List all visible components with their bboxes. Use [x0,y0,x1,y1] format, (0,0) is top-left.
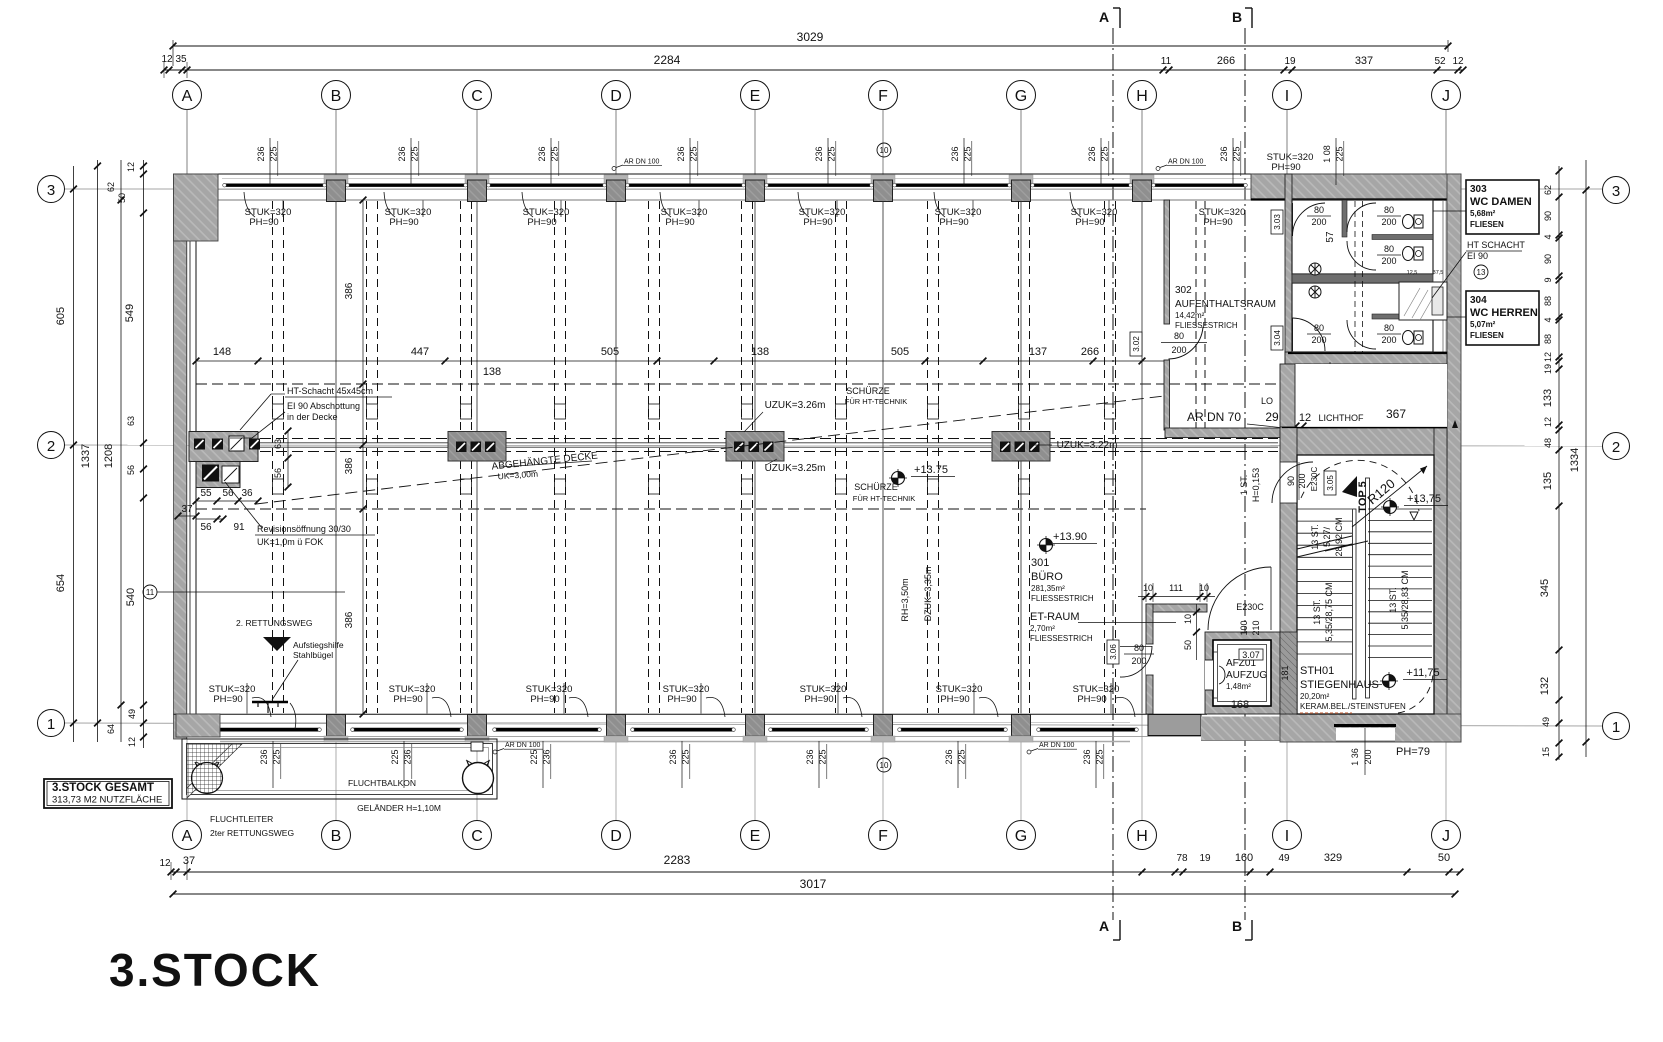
svg-text:G: G [1015,88,1027,105]
svg-text:A: A [182,828,193,845]
svg-text:225: 225 [390,749,400,764]
svg-text:50: 50 [117,193,127,203]
svg-text:3.03: 3.03 [1273,214,1282,230]
svg-text:3017: 3017 [800,877,827,891]
svg-text:G: G [1015,828,1027,845]
svg-text:C: C [471,88,483,105]
svg-text:88: 88 [1543,334,1553,344]
svg-text:PH=90: PH=90 [804,694,833,705]
svg-text:EI 90 Abschottung: EI 90 Abschottung [287,401,360,411]
svg-text:3.02: 3.02 [1132,336,1141,352]
svg-text:37: 37 [181,504,193,515]
svg-text:FLIESSESTRICH: FLIESSESTRICH [1031,594,1094,603]
svg-text:80: 80 [1174,331,1184,341]
svg-text:10: 10 [1199,583,1209,593]
svg-text:14,42m²: 14,42m² [1175,311,1205,320]
svg-text:11: 11 [146,588,155,597]
svg-text:12,5: 12,5 [1407,270,1418,276]
svg-text:FLUCHTLEITER: FLUCHTLEITER [210,814,273,824]
svg-text:ET-RAUM: ET-RAUM [1030,611,1080,623]
svg-text:13 ST.: 13 ST. [1310,524,1320,550]
svg-text:35: 35 [175,54,187,65]
svg-text:STIEGENHAUS: STIEGENHAUS [1300,679,1379,691]
svg-text:+13.75: +13.75 [914,464,948,476]
svg-text:10: 10 [880,146,889,155]
svg-text:FÜR HT-TECHNIK: FÜR HT-TECHNIK [853,494,916,503]
svg-text:1 36: 1 36 [1350,748,1360,766]
svg-text:AR DN 70: AR DN 70 [1187,410,1241,424]
svg-text:2ter RETTUNGSWEG: 2ter RETTUNGSWEG [210,828,294,838]
svg-text:A: A [1099,9,1109,25]
svg-text:80: 80 [1384,205,1394,215]
svg-text:A: A [1099,918,1109,934]
svg-text:236: 236 [944,749,954,764]
svg-text:301: 301 [1031,557,1049,569]
svg-text:654: 654 [55,574,67,592]
svg-text:J: J [1442,88,1450,105]
svg-text:11: 11 [1161,56,1172,67]
svg-text:138: 138 [751,346,769,358]
svg-text:281,35m²: 281,35m² [1031,584,1065,593]
svg-text:1: 1 [1612,719,1620,736]
svg-text:1334: 1334 [1569,448,1581,472]
svg-text:200: 200 [1171,345,1186,355]
svg-text:PH=90: PH=90 [940,694,969,705]
svg-text:78: 78 [1176,853,1188,864]
svg-text:13 ST.: 13 ST. [1388,587,1398,613]
svg-text:Revisionsöffnung 30/30: Revisionsöffnung 30/30 [257,524,351,534]
svg-text:PH=90: PH=90 [527,217,556,228]
svg-text:9: 9 [1543,277,1553,282]
svg-text:13: 13 [1477,268,1486,277]
svg-text:PH=90: PH=90 [939,217,968,228]
svg-text:E230C: E230C [1236,602,1264,612]
svg-text:D: D [610,88,622,105]
svg-text:266: 266 [1081,346,1099,358]
svg-text:PH=79: PH=79 [1396,746,1430,758]
svg-text:3.STOCK: 3.STOCK [109,944,321,996]
svg-text:266: 266 [1217,55,1235,67]
svg-text:200: 200 [1381,335,1396,345]
svg-text:111: 111 [1169,583,1183,593]
svg-text:B: B [1232,9,1242,25]
svg-text:1: 1 [47,716,55,733]
svg-text:386: 386 [344,457,355,474]
svg-text:90: 90 [1286,476,1296,486]
svg-text:13 ST.: 13 ST. [1312,599,1322,625]
svg-text:63: 63 [273,439,283,449]
svg-text:Aufstiegshilfe: Aufstiegshilfe [293,640,344,650]
svg-text:90: 90 [1543,211,1553,221]
svg-text:12: 12 [1299,412,1311,424]
svg-text:FLIESEN: FLIESEN [1470,220,1504,229]
svg-text:HT SCHACHT: HT SCHACHT [1467,240,1525,250]
svg-text:PH=90: PH=90 [667,694,696,705]
svg-text:5,68m²: 5,68m² [1470,209,1496,218]
svg-text:160: 160 [1235,852,1253,864]
svg-text:148: 148 [213,346,231,358]
svg-text:E: E [750,88,761,105]
svg-text:447: 447 [411,346,429,358]
svg-text:12: 12 [127,737,137,747]
svg-text:367: 367 [1386,407,1406,421]
svg-text:UZUK=3.22m: UZUK=3.22m [1057,440,1118,451]
svg-text:AR DN 100: AR DN 100 [624,159,660,166]
svg-text:36: 36 [241,488,253,499]
svg-text:3029: 3029 [797,30,824,44]
svg-text:PH=90: PH=90 [1271,162,1300,173]
svg-text:D: D [610,828,622,845]
svg-text:LICHTHOF: LICHTHOF [1319,413,1365,423]
svg-text:56: 56 [200,522,212,533]
svg-text:+13,75: +13,75 [1407,493,1441,505]
svg-text:50: 50 [1438,852,1450,864]
svg-text:Stahlbügel: Stahlbügel [293,650,333,660]
svg-text:1 08: 1 08 [1322,145,1332,163]
svg-text:2: 2 [1612,439,1620,456]
svg-text:3.06: 3.06 [1109,644,1118,660]
svg-text:12: 12 [1543,352,1553,362]
svg-text:3.04: 3.04 [1273,330,1282,346]
svg-text:E230C: E230C [1310,467,1319,492]
svg-text:63: 63 [126,416,136,426]
svg-text:4: 4 [1543,234,1553,239]
svg-text:H: H [1136,88,1148,105]
svg-text:3.07: 3.07 [1242,650,1260,660]
svg-text:PH=90: PH=90 [530,694,559,705]
svg-text:I: I [1285,88,1289,105]
svg-text:FLUCHTBALKON: FLUCHTBALKON [348,778,416,788]
svg-text:A: A [182,88,193,105]
svg-text:64: 64 [106,724,116,734]
svg-text:80: 80 [1384,244,1394,254]
svg-text:+11,75: +11,75 [1406,667,1439,679]
svg-text:PH=90: PH=90 [213,694,242,705]
svg-text:329: 329 [1324,852,1342,864]
svg-text:236: 236 [814,146,824,161]
svg-text:49: 49 [1278,853,1290,864]
svg-text:90: 90 [1543,254,1553,264]
svg-text:236: 236 [1082,749,1092,764]
svg-text:12: 12 [1452,56,1464,67]
svg-text:225: 225 [529,749,539,764]
svg-text:57: 57 [1325,231,1336,243]
svg-text:B: B [1232,918,1242,934]
svg-text:UZUK=3.25m: UZUK=3.25m [765,463,826,474]
svg-text:5,07m²: 5,07m² [1470,320,1496,329]
svg-text:TOP 5: TOP 5 [1357,481,1369,512]
svg-text:3.05: 3.05 [1326,475,1335,491]
svg-text:BÜRO: BÜRO [1031,571,1063,583]
svg-text:37: 37 [183,855,195,867]
svg-text:55: 55 [200,488,212,499]
svg-text:SCHÜRZE: SCHÜRZE [846,386,890,396]
svg-text:80: 80 [1134,643,1144,653]
svg-text:PH=90: PH=90 [389,217,418,228]
svg-text:2283: 2283 [664,853,691,867]
svg-text:LO: LO [1261,396,1273,406]
svg-text:UZUK=3.26m: UZUK=3.26m [765,400,826,411]
svg-text:540: 540 [125,588,137,606]
svg-text:DZUK=3,35m: DZUK=3,35m [923,567,933,622]
svg-text:12: 12 [1543,417,1553,427]
svg-text:236: 236 [256,146,266,161]
svg-text:1,48m²: 1,48m² [1226,682,1251,691]
svg-text:AUFZUG: AUFZUG [1226,670,1267,681]
svg-text:2: 2 [47,438,55,455]
svg-text:168: 168 [1231,699,1249,711]
svg-text:I: I [1285,828,1289,845]
svg-text:20,20m²: 20,20m² [1300,692,1330,701]
svg-text:62: 62 [106,182,116,192]
svg-text:RH=3,50m: RH=3,50m [900,578,910,621]
svg-text:303: 303 [1470,184,1487,195]
svg-text:236: 236 [668,749,678,764]
svg-text:2284: 2284 [654,53,681,67]
svg-text:62: 62 [1543,185,1553,195]
svg-text:236: 236 [805,749,815,764]
svg-text:28,92 CM: 28,92 CM [1334,517,1344,556]
svg-text:200: 200 [1381,256,1396,266]
svg-text:91: 91 [233,522,245,533]
svg-text:80: 80 [1314,205,1324,215]
svg-text:1337: 1337 [80,444,92,468]
svg-text:200: 200 [1131,656,1146,666]
svg-text:236: 236 [397,146,407,161]
svg-text:10: 10 [1183,614,1193,624]
svg-text:49: 49 [1541,717,1551,727]
svg-text:PH=90: PH=90 [249,217,278,228]
svg-text:10: 10 [1143,583,1153,593]
svg-text:H: H [1136,828,1148,845]
svg-text:80: 80 [1314,323,1324,333]
svg-text:AR DN 100: AR DN 100 [505,742,541,749]
svg-text:WC DAMEN: WC DAMEN [1470,196,1532,208]
svg-text:12: 12 [161,54,173,65]
svg-text:236: 236 [950,146,960,161]
svg-text:PH=90: PH=90 [1203,217,1232,228]
svg-text:200: 200 [1363,749,1373,764]
svg-text:313,73 M2 NUTZFLÄCHE: 313,73 M2 NUTZFLÄCHE [52,795,162,806]
svg-text:AUFENTHALTSRAUM: AUFENTHALTSRAUM [1175,299,1276,310]
svg-text:F: F [878,88,888,105]
svg-text:AR DN 100: AR DN 100 [1168,159,1204,166]
svg-text:2,70m²: 2,70m² [1030,624,1055,633]
svg-text:52: 52 [1434,56,1446,67]
svg-text:19: 19 [1284,56,1296,67]
svg-text:15: 15 [1541,747,1551,757]
svg-text:138: 138 [483,366,501,378]
svg-text:B: B [331,88,342,105]
svg-text:50: 50 [1183,640,1193,650]
svg-text:236: 236 [676,146,686,161]
svg-text:80: 80 [1384,323,1394,333]
svg-text:505: 505 [891,346,909,358]
svg-text:200: 200 [1297,473,1307,488]
svg-text:STH01: STH01 [1300,665,1334,677]
svg-text:J: J [1442,828,1450,845]
svg-text:100: 100 [1239,620,1249,635]
svg-text:505: 505 [601,346,619,358]
svg-text:200: 200 [1311,217,1326,227]
svg-text:386: 386 [344,282,355,299]
svg-text:H=0,153: H=0,153 [1251,468,1261,502]
svg-text:236: 236 [259,749,269,764]
svg-text:PH=90: PH=90 [1075,217,1104,228]
svg-text:SCHÜRZE: SCHÜRZE [854,482,898,492]
svg-text:UK=1,0m ü FOK: UK=1,0m ü FOK [257,537,323,547]
svg-text:1208: 1208 [103,444,115,468]
svg-text:3: 3 [47,182,55,199]
svg-text:56: 56 [222,488,234,499]
svg-text:E: E [750,828,761,845]
svg-text:49: 49 [127,709,137,719]
svg-text:F: F [878,828,888,845]
svg-text:48: 48 [1543,438,1553,448]
svg-text:56: 56 [126,465,136,475]
svg-text:B: B [331,828,342,845]
svg-text:386: 386 [344,611,355,628]
svg-text:236: 236 [537,146,547,161]
svg-text:19: 19 [1543,364,1553,374]
svg-text:132: 132 [1539,677,1551,695]
svg-text:+13.90: +13.90 [1053,531,1087,543]
svg-text:GELÄNDER H=1,10M: GELÄNDER H=1,10M [357,803,441,813]
svg-text:181: 181 [1280,665,1290,680]
svg-text:236: 236 [1087,146,1097,161]
svg-text:3.STOCK GESAMT: 3.STOCK GESAMT [52,782,154,794]
svg-text:236: 236 [1219,146,1229,161]
svg-text:56: 56 [273,468,283,478]
svg-text:12: 12 [159,858,171,869]
svg-text:88: 88 [1543,296,1553,306]
svg-text:200: 200 [1381,217,1396,227]
svg-text:3: 3 [1612,183,1620,200]
svg-text:549: 549 [124,304,136,322]
svg-text:PH=90: PH=90 [393,694,422,705]
svg-text:10: 10 [880,761,889,770]
svg-text:1 ST.: 1 ST. [1239,475,1249,496]
svg-text:EI 90: EI 90 [1467,251,1488,261]
svg-text:FLIESSESTRICH: FLIESSESTRICH [1175,321,1238,330]
svg-text:5,27/: 5,27/ [1322,526,1332,547]
svg-text:FLIESSESTRICH: FLIESSESTRICH [1030,634,1093,643]
svg-text:137: 137 [1029,346,1047,358]
svg-text:133: 133 [1542,389,1554,407]
svg-text:PH=90: PH=90 [1077,694,1106,705]
svg-text:in der Decke: in der Decke [287,412,338,422]
svg-text:4: 4 [1543,317,1553,322]
svg-text:12: 12 [126,162,136,172]
svg-text:605: 605 [55,307,67,325]
svg-text:2. RETTUNGSWEG: 2. RETTUNGSWEG [236,618,313,628]
svg-text:29: 29 [1265,410,1279,424]
svg-text:135: 135 [1542,472,1554,490]
svg-text:PH=90: PH=90 [665,217,694,228]
svg-text:FÜR HT-TECHNIK: FÜR HT-TECHNIK [845,397,908,406]
svg-text:302: 302 [1175,285,1192,296]
svg-text:210: 210 [1251,620,1261,635]
svg-text:37,5: 37,5 [1433,270,1444,276]
svg-text:345: 345 [1539,579,1551,597]
svg-text:200: 200 [1311,335,1326,345]
svg-text:5,35/28,83 CM: 5,35/28,83 CM [1400,570,1410,629]
svg-text:19: 19 [1199,853,1211,864]
svg-text:AR DN 100: AR DN 100 [1039,742,1075,749]
svg-text:WC HERREN: WC HERREN [1470,307,1538,319]
svg-text:337: 337 [1355,55,1373,67]
svg-text:KERAM.BEL./STEINSTUFEN: KERAM.BEL./STEINSTUFEN [1300,702,1406,711]
svg-text:304: 304 [1470,295,1487,306]
svg-text:5,35/28,75 CM: 5,35/28,75 CM [1324,582,1334,641]
svg-text:C: C [471,828,483,845]
svg-text:FLIESEN: FLIESEN [1470,331,1504,340]
svg-text:PH=90: PH=90 [803,217,832,228]
